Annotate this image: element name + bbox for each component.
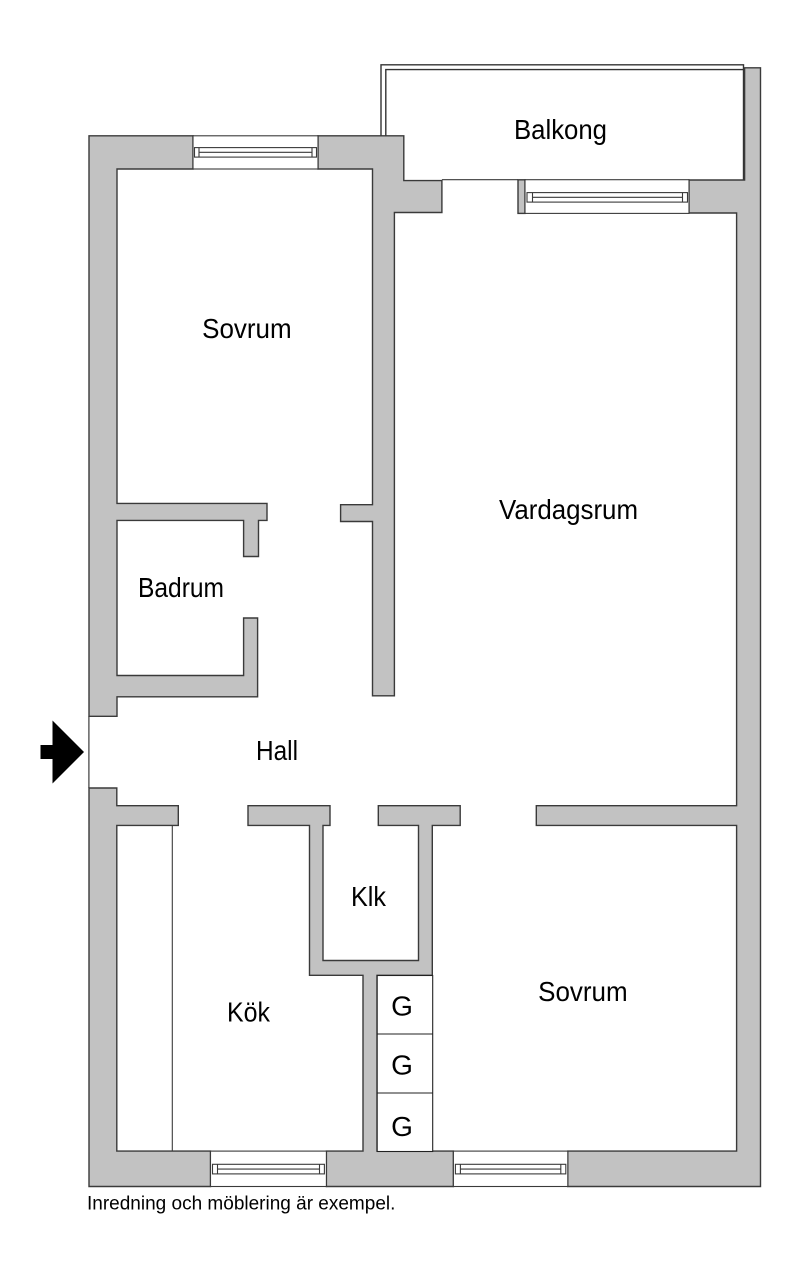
- svg-text:Inredning och möblering är exe: Inredning och möblering är exempel.: [87, 1194, 395, 1215]
- svg-text:G: G: [391, 1111, 413, 1142]
- svg-text:G: G: [391, 991, 413, 1022]
- svg-text:Sovrum: Sovrum: [202, 313, 292, 344]
- svg-text:Hall: Hall: [256, 735, 298, 766]
- svg-text:Sovrum: Sovrum: [538, 976, 628, 1007]
- svg-text:Badrum: Badrum: [138, 572, 224, 603]
- svg-text:Kök: Kök: [227, 997, 270, 1028]
- svg-text:Vardagsrum: Vardagsrum: [499, 494, 638, 525]
- svg-text:Klk: Klk: [351, 881, 386, 912]
- svg-text:G: G: [391, 1050, 413, 1081]
- svg-text:Balkong: Balkong: [514, 114, 607, 145]
